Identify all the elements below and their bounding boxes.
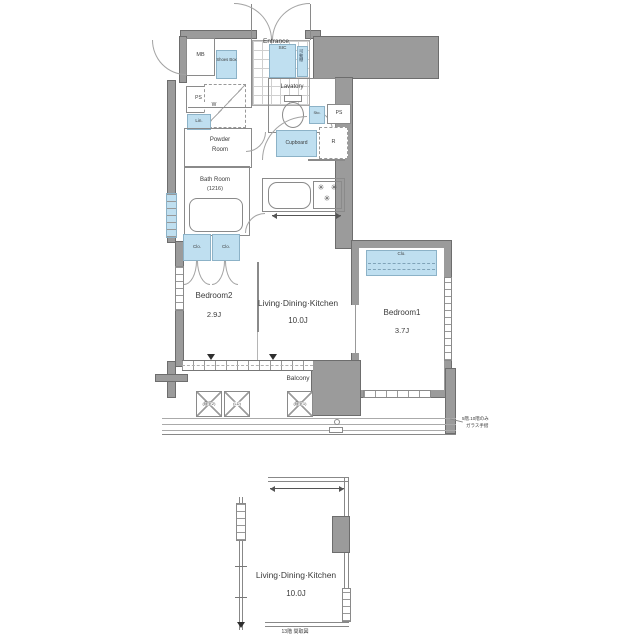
bedroom1-right-window [444,277,452,361]
powder-room-label1: Powder [190,137,250,144]
lp-left-tick1 [235,566,247,567]
ac-unit-label-1: (寝室2) [202,402,217,406]
refrigerator-label: R [319,139,348,146]
lavatory-label: Lavatory [270,84,314,91]
ldk-top-wall [308,159,345,161]
lp-caption: 13階 間取図 [252,629,338,635]
hall-left-line [251,38,252,108]
wall-balcony-stub-h [155,374,188,382]
ldk-label: Living·Dining·Kitchen [250,298,346,308]
ac-unit-label-2: (LD) [232,402,242,406]
storage-label: Sto. [309,111,325,116]
kitchen-dim-line [272,215,341,216]
balcony-rail-line1 [162,418,456,419]
wall-core-arm [335,77,353,249]
bath-room-size: (1216) [186,186,244,193]
kitchen-sink [268,182,311,209]
ps-right-label: PS [327,110,351,116]
stove-burner-icon: ✳ [329,183,339,193]
stove-burner-icon: ✳ [316,183,326,193]
closet-door-arc-4 [225,261,238,285]
drain-circle [334,419,340,425]
window-marker-1 [207,354,215,360]
bedroom2-size: 2.9J [174,310,254,319]
lp-left-window [236,503,246,541]
kitchen-dim-arrow-left [272,213,277,219]
bath-room-label: Bath Room [186,177,244,184]
ac-unit-space-3: (寝室1) [287,391,313,417]
bedroom1-door-leaf [355,305,356,353]
balcony-small-rect [329,427,343,433]
closet-door-arc-2 [197,261,210,285]
closet-bedroom1-dash2 [368,269,435,270]
bedroom2-door-leaf [257,332,258,360]
entrance-door-arc-left [234,3,272,40]
kitchen-dim-arrow-right [336,213,341,219]
powder-room-label2: Room [190,147,250,154]
lp-ldk-size: 10.0J [246,589,346,599]
closet-bedroom2-right-label: Clo. [212,244,240,249]
wall-balcony-block [311,360,361,416]
lp-gray-block [332,516,350,553]
bedroom2-label: Bedroom2 [174,291,254,301]
sic-label: SIC [269,46,296,52]
closet-bedroom1-label: Clo. [366,251,437,256]
lp-bottom-wall [265,622,349,627]
entrance-door-arc-right [272,3,310,40]
stove-burner-icon: ✳ [322,194,332,204]
ac-unit-label-3: (寝室1) [293,402,308,406]
closet-door-arc-3 [212,261,225,285]
balcony-edge-line [162,434,456,435]
cupboard-label: Cupboard [276,140,317,146]
window-marker-2 [269,354,277,360]
bathtub [189,198,243,232]
closet-bedroom2-left-label: Clo. [183,244,211,249]
lp-top-wall [268,477,349,482]
bedroom1-bottom-window [363,390,431,398]
ac-unit-space-1: (寝室2) [196,391,222,417]
balcony-rail-line2 [162,424,456,425]
closet-bedroom1-dash1 [368,263,435,264]
entrance-side-right [310,4,311,40]
lp-ldk-label: Living·Dining·Kitchen [246,570,346,580]
shoes-box-label: Shoes Box [216,57,237,62]
hall-bottom-line [188,107,252,108]
floorplan-canvas: Entrance MB Shoes Box SIC 可動棚 PS W Lin. … [0,0,640,639]
movable-shelf-label: 可動棚 [299,49,303,62]
wall-core-block [313,36,439,79]
bath-window [166,193,177,238]
shoes-box [216,50,237,79]
south-window-centerline [182,365,313,366]
bedroom1-label: Bedroom1 [362,308,442,318]
linen-label: Lin. [187,118,211,123]
meter-box-label: MB [186,52,215,59]
toilet-tank [284,95,302,102]
glass-rail-note-line2: ガラス手摺 [466,423,508,428]
bedroom2-left-window [175,266,184,311]
ldk-size: 10.0J [250,316,346,326]
bedroom1-size: 3.7J [362,326,442,335]
balcony-label: Balcony [268,375,328,383]
closet-door-arc-1 [184,261,197,285]
balcony-rail-line3 [162,430,456,431]
meter-box-door-arc [152,40,186,75]
lp-right-wall-upper [344,477,349,520]
lp-dim-arrow-left [270,486,275,492]
lp-dim-line [270,488,344,489]
ac-unit-space-2: (LD) [224,391,250,417]
glass-rail-note-line1: 5階.10階のみ [462,416,508,421]
lp-left-end-arrow [237,622,245,628]
